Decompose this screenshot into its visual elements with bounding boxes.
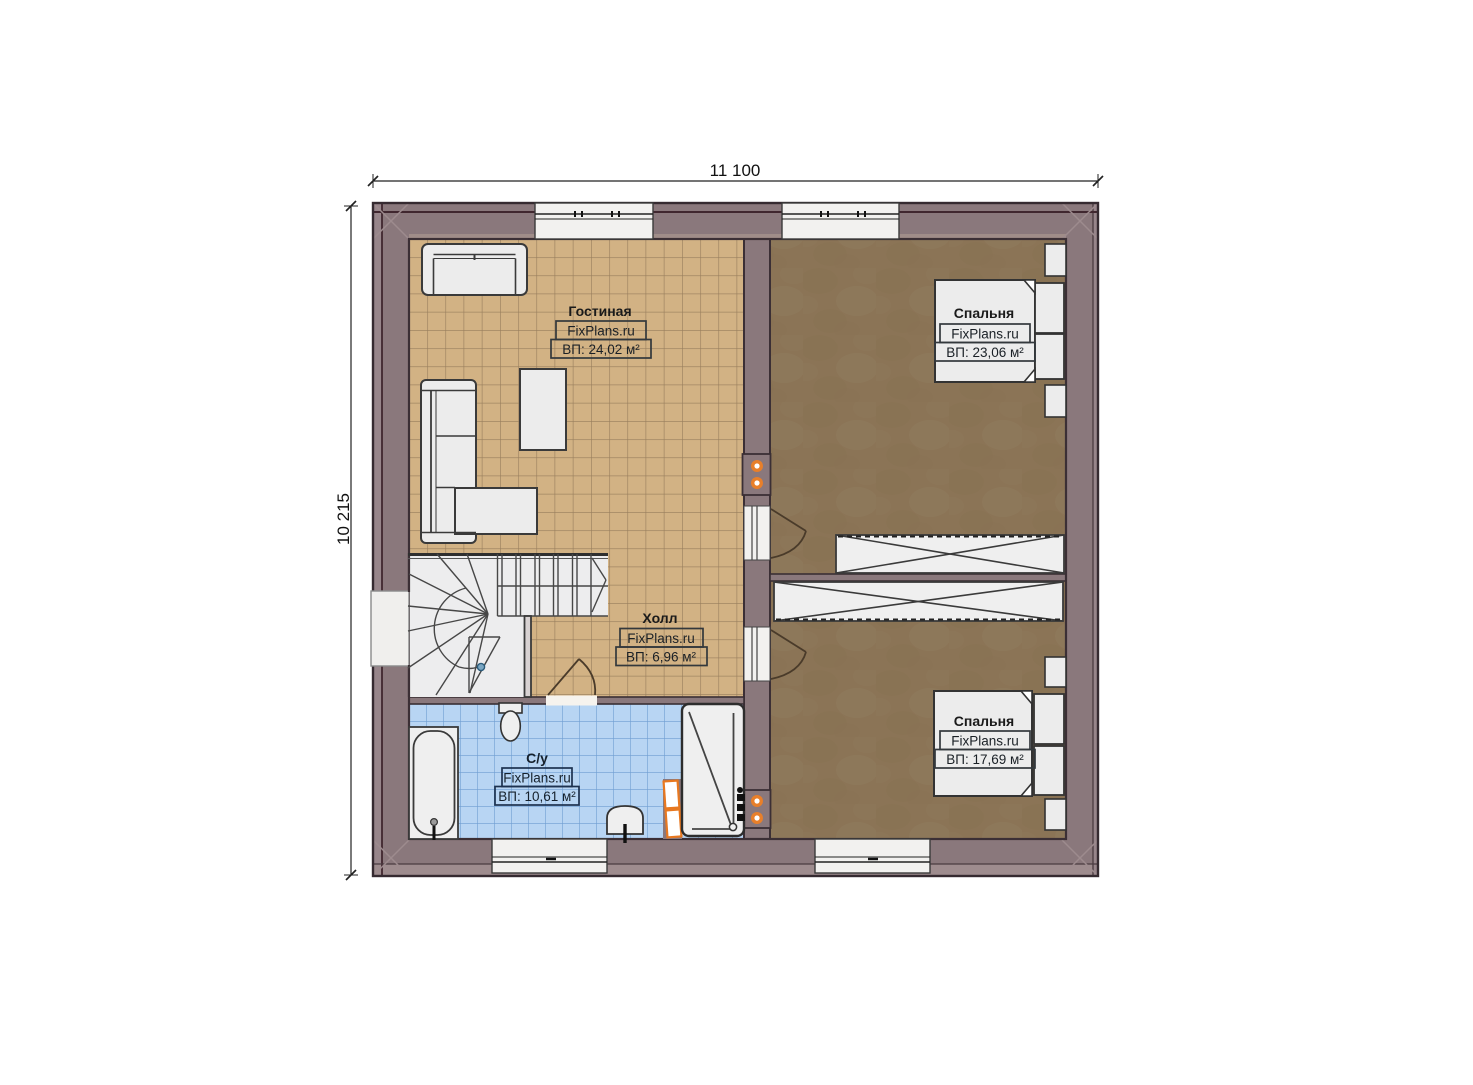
- svg-text:FixPlans.ru: FixPlans.ru: [567, 324, 635, 339]
- svg-text:Спальня: Спальня: [954, 305, 1014, 321]
- svg-text:ВП: 23,06 м²: ВП: 23,06 м²: [946, 345, 1024, 360]
- svg-text:ВП: 10,61 м²: ВП: 10,61 м²: [498, 789, 576, 804]
- svg-text:Спальня: Спальня: [954, 713, 1014, 729]
- svg-text:11 100: 11 100: [710, 161, 761, 180]
- svg-text:Гостиная: Гостиная: [568, 303, 631, 319]
- svg-text:FixPlans.ru: FixPlans.ru: [627, 631, 695, 646]
- svg-text:ВП: 24,02 м²: ВП: 24,02 м²: [562, 342, 640, 357]
- svg-text:10 215: 10 215: [334, 493, 353, 545]
- svg-text:ВП: 17,69 м²: ВП: 17,69 м²: [946, 752, 1024, 767]
- svg-text:Холл: Холл: [642, 610, 677, 626]
- svg-text:FixPlans.ru: FixPlans.ru: [951, 327, 1019, 342]
- svg-text:FixPlans.ru: FixPlans.ru: [503, 771, 571, 786]
- svg-text:FixPlans.ru: FixPlans.ru: [951, 734, 1019, 749]
- svg-text:ВП: 6,96 м²: ВП: 6,96 м²: [626, 650, 697, 665]
- svg-text:С/у: С/у: [526, 750, 548, 766]
